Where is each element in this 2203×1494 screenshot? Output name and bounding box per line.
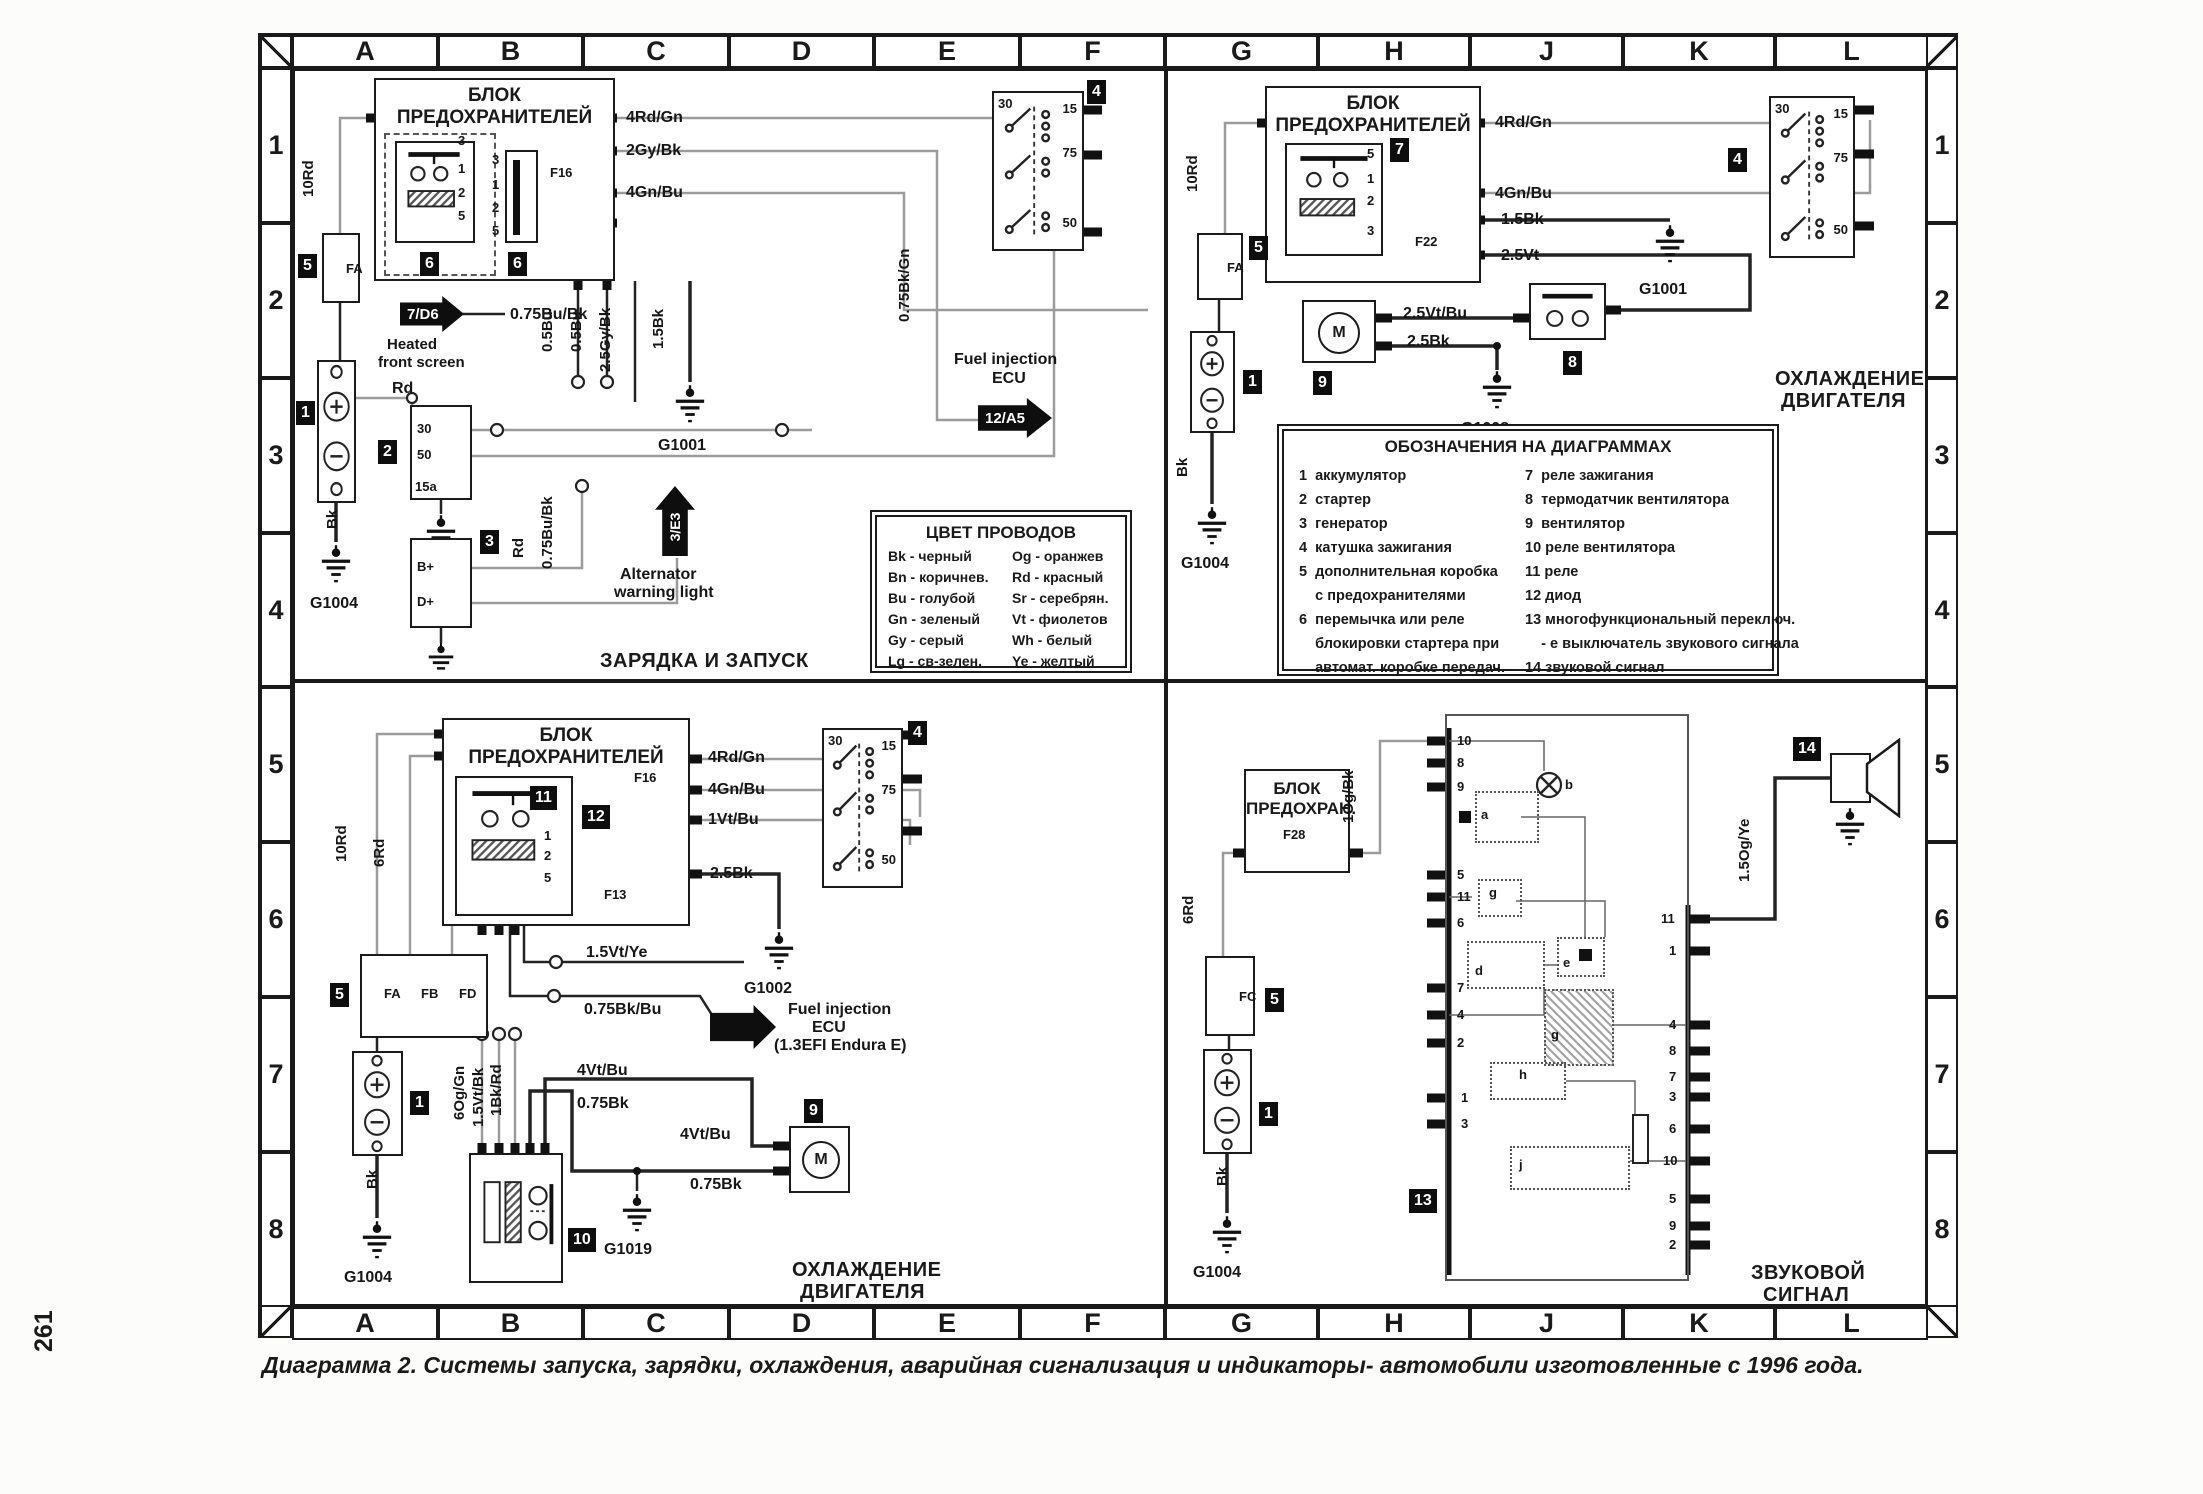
wire-label: 4Gn/Bu — [1495, 185, 1552, 203]
page-number: 261 — [30, 1310, 59, 1352]
grid-row-right-3: 3 — [1926, 378, 1958, 533]
mfs-switch-letter: b — [1565, 777, 1573, 792]
legend-row: 7 реле зажигания — [1525, 464, 1799, 488]
wire-label: 4Gn/Bu — [626, 184, 683, 202]
wire-label-vertical: 6Rd — [371, 839, 388, 867]
section-title-q4-line1: ЗВУКОВОЙ — [1751, 1262, 1865, 1285]
grid-col-top-g: G — [1165, 35, 1318, 68]
grid-row-right-8: 8 — [1926, 1152, 1958, 1307]
legend-row: 5 дополнительная коробка — [1299, 560, 1505, 584]
ignition-pin: 15 — [882, 738, 896, 753]
battery — [1203, 1049, 1252, 1154]
section-title-q3-line2: ДВИГАТЕЛЯ — [800, 1281, 925, 1304]
grid-row-left-4: 4 — [260, 533, 292, 687]
legend-row: - е выключатель звукового сигнала — [1525, 632, 1799, 656]
legend-row: 10 реле вентилятора — [1525, 536, 1799, 560]
mfs-switch-j-box — [1510, 1146, 1630, 1190]
legend-row: Bk - черный — [888, 546, 989, 567]
battery — [1190, 331, 1235, 433]
frame-corner-bl — [260, 1305, 292, 1338]
starter-pin: 15a — [415, 479, 437, 494]
legend-row: 4 катушка зажигания — [1299, 536, 1505, 560]
ground-label: G1001 — [658, 437, 706, 455]
grid-col-bot-e: E — [874, 1307, 1020, 1340]
mfs-right-pin: 6 — [1669, 1121, 1676, 1136]
fuse-label-f13: F13 — [604, 887, 626, 902]
motor-icon: M — [1318, 312, 1360, 354]
fan-motor: M — [1302, 300, 1376, 363]
wire-colors-right-column: Og - оранжев Rd - красный Sr - серебрян.… — [1012, 546, 1108, 672]
legend-row: Og - оранжев — [1012, 546, 1108, 567]
relay-pin: 3 — [458, 133, 465, 148]
alternator — [410, 538, 472, 628]
badge-horn: 14 — [1793, 737, 1821, 761]
connector-pin: 3 — [492, 152, 499, 167]
grid-row-right-1: 1 — [1926, 68, 1958, 223]
grid-col-bot-j: J — [1470, 1307, 1623, 1340]
ignition-pin: 15 — [1063, 101, 1077, 116]
wire-label-vertical: 1Bk/Rd — [488, 1064, 505, 1116]
ground-icon — [424, 643, 458, 679]
motor-icon: M — [802, 1141, 840, 1179]
wire-label-vertical: 10Rd — [333, 825, 350, 862]
wire-colors-legend-title: ЦВЕТ ПРОВОДОВ — [872, 523, 1130, 543]
grid-row-right-2: 2 — [1926, 223, 1958, 378]
ground-icon-horn — [1833, 807, 1867, 851]
mfs-left-pin: 10 — [1457, 733, 1471, 748]
mfs-switch-h-box — [1490, 1062, 1566, 1100]
mfs-left-pin: 7 — [1457, 980, 1464, 995]
ground-icon-g1004 — [360, 1220, 394, 1264]
legend-row: блокировки стартера при — [1299, 632, 1505, 656]
wire-label-vertical: Rd — [510, 538, 527, 558]
mfs-right-pin: 10 — [1663, 1153, 1677, 1168]
grid-row-right-6: 6 — [1926, 842, 1958, 997]
wire-label-vertical: 0.75Bk/Gn — [896, 249, 913, 322]
ignition-pin: 75 — [1063, 145, 1077, 160]
fuse-label-fc: FC — [1239, 989, 1256, 1004]
battery-icon — [354, 1053, 401, 1154]
mfs-switch-g-box — [1478, 879, 1522, 917]
grid-col-top-h: H — [1318, 35, 1470, 68]
ignition-switch: 30 15 75 50 — [992, 91, 1084, 251]
legend-row: 6 перемычка или реле — [1299, 608, 1505, 632]
ecu-caption-1: Fuel injection — [788, 1001, 891, 1019]
wire-label-vertical: Bk — [364, 1170, 381, 1189]
badge-ignition: 4 — [908, 721, 927, 745]
fuse-label-f28: F28 — [1283, 827, 1305, 842]
wire-label-vertical: Bk — [1214, 1167, 1231, 1186]
frame-corner-tr — [1926, 35, 1958, 68]
alt-warning-caption-2: warning light — [614, 584, 714, 602]
grid-row-left-1: 1 — [260, 68, 292, 223]
wire-label: 2.5Vt — [1501, 247, 1539, 265]
ecu-caption-2: ECU — [992, 370, 1026, 388]
grid-col-top-c: C — [583, 35, 729, 68]
thermo-switch-icon — [1531, 285, 1604, 338]
legend-row: автомат. коробке передач. — [1299, 656, 1505, 680]
quadrant-engine-cooling-top: БЛОК ПРЕДОХРАНИТЕЛЕЙ 5 1 2 3 7 F22 4Rd/G… — [1165, 68, 1928, 680]
mfs-left-pin: 5 — [1457, 867, 1464, 882]
wire-label: 0.75Bk — [690, 1176, 742, 1194]
wire-label-vertical: 10Rd — [300, 160, 317, 197]
grid-row-left-5: 5 — [260, 687, 292, 842]
fan-relay-box — [469, 1153, 563, 1283]
diagram-canvas: БЛОК ПРЕДОХРАНИТЕЛЕЙ 3 1 2 5 6 3 1 2 5 — [292, 68, 1928, 1307]
wire-label-vertical: 0.5Bu — [568, 311, 585, 352]
fuse-label-fd: FD — [459, 986, 476, 1001]
legend-row: Ye - желтый — [1012, 651, 1108, 672]
mfs-switch-letter: e — [1563, 955, 1570, 970]
legend-row: Wh - белый — [1012, 630, 1108, 651]
badge-aux-fusebox: 5 — [1265, 988, 1284, 1012]
grid-row-left-6: 6 — [260, 842, 292, 997]
wire-label-vertical: 0.5Bu — [539, 311, 556, 352]
legend-row: с предохранителями — [1299, 584, 1505, 608]
badge-ignition-relay: 7 — [1390, 138, 1409, 162]
section-title-q2-line1: ОХЛАЖДЕНИЕ — [1775, 368, 1924, 391]
grid-col-top-b: B — [438, 35, 583, 68]
fuse-label-fa: FA — [1227, 260, 1244, 275]
badge-thermo: 8 — [1563, 351, 1582, 375]
ground-icon-g1019 — [620, 1193, 654, 1237]
arrow-ref: 12/A5 — [985, 410, 1025, 427]
badge-ignition: 4 — [1728, 148, 1747, 172]
legend-row: 8 термодатчик вентилятора — [1525, 488, 1799, 512]
ground-label: G1004 — [344, 1269, 392, 1287]
alternator-pin: D+ — [417, 594, 434, 609]
legend-row: 13 многофункциональный переключ. — [1525, 608, 1799, 632]
relay-pin: 1 — [544, 828, 551, 843]
wire-label-vertical: Bk — [324, 510, 341, 529]
ignition-switch: 30 15 75 50 — [1769, 96, 1855, 258]
grid-row-left-2: 2 — [260, 223, 292, 378]
ground-label: G1004 — [1181, 555, 1229, 573]
alternator-pin: B+ — [417, 559, 434, 574]
quadrant-charging-starting: БЛОК ПРЕДОХРАНИТЕЛЕЙ 3 1 2 5 6 3 1 2 5 — [292, 68, 1165, 680]
fuse-box-title-q4-line2: ПРЕДОХРАН. — [1246, 799, 1348, 819]
legend-row: Sr - серебрян. — [1012, 588, 1108, 609]
wire-colors-left-column: Bk - черный Bn - коричнев. Bu - голубой … — [888, 546, 989, 672]
wire-label-vertical: 0.75Bu/Bk — [539, 496, 556, 569]
grid-col-bot-a: A — [292, 1307, 438, 1340]
wire-label: 2Gy/Bk — [626, 142, 681, 160]
fan-motor: M — [789, 1126, 850, 1193]
heated-caption-2: front screen — [378, 354, 465, 371]
grid-col-top-k: K — [1623, 35, 1775, 68]
badge-diode-12: 12 — [582, 805, 610, 829]
mfs-left-pin: 4 — [1457, 1007, 1464, 1022]
grid-col-bot-k: K — [1623, 1307, 1775, 1340]
ground-icon-g1004 — [1195, 506, 1229, 550]
grid-col-bot-c: C — [583, 1307, 729, 1340]
wire-label: 0.75Bk/Bu — [584, 1001, 661, 1019]
grid-row-right-4: 4 — [1926, 533, 1958, 687]
ignition-pin: 30 — [1775, 101, 1789, 116]
relay-pin: 3 — [1367, 223, 1374, 238]
ground-label: G1004 — [1193, 1264, 1241, 1282]
fuse-label-f16: F16 — [550, 165, 572, 180]
mfs-right-pin: 2 — [1669, 1237, 1676, 1252]
mfs-right-pin: 3 — [1669, 1089, 1676, 1104]
badge-alternator: 3 — [480, 530, 499, 554]
connector-pin: 2 — [492, 200, 499, 215]
mfs-left-pin: 2 — [1457, 1035, 1464, 1050]
relay-pin: 1 — [1367, 171, 1374, 186]
wire-label: 2.5Bk — [710, 865, 753, 883]
grid-col-top-f: F — [1020, 35, 1165, 68]
ground-icon-g1001 — [1653, 224, 1687, 268]
fuse-label-f16: F16 — [634, 770, 656, 785]
ground-icon-g1008 — [1480, 370, 1514, 414]
ground-icon-g1004 — [1210, 1215, 1244, 1259]
ground-label: G1001 — [1639, 281, 1687, 299]
grid-col-bot-b: B — [438, 1307, 583, 1340]
mfs-switch-letter: j — [1519, 1157, 1523, 1172]
wire-label: 4Rd/Gn — [1495, 114, 1552, 132]
ground-label: G1004 — [310, 595, 358, 613]
connector-bar-icon — [513, 160, 520, 235]
ground-label: G1002 — [744, 980, 792, 998]
grid-col-bot-h: H — [1318, 1307, 1470, 1340]
wire-label: 4Gn/Bu — [708, 781, 765, 799]
wire-label-vertical: 1Og/Bk — [1340, 770, 1357, 823]
relay-pin: 5 — [544, 870, 551, 885]
legend-row: Bu - голубой — [888, 588, 989, 609]
wire-label-vertical: 2.5Gy/Bk — [597, 308, 614, 372]
frame-corner-tl — [260, 35, 292, 68]
grid-row-right-5: 5 — [1926, 687, 1958, 842]
mfs-switch-letter: d — [1475, 963, 1483, 978]
ground-icon-g1002 — [762, 931, 796, 975]
ground-icon-g1004 — [319, 544, 353, 588]
grid-col-top-j: J — [1470, 35, 1623, 68]
legend-row: Vt - фиолетов — [1012, 609, 1108, 630]
wire-label: 1.5Vt/Ye — [586, 944, 647, 962]
relay-pin: 5 — [458, 208, 465, 223]
connector-block-q1 — [505, 150, 538, 243]
starter-pin: 50 — [417, 447, 431, 462]
mfs-right-pin: 8 — [1669, 1043, 1676, 1058]
fuse-label-fb: FB — [421, 986, 438, 1001]
arrow-ref: 3/Е3 — [667, 512, 683, 541]
battery — [317, 360, 356, 503]
mfs-switch-letter: g — [1489, 885, 1497, 900]
badge-starter: 2 — [378, 440, 397, 464]
wire-label: 4Vt/Bu — [577, 1062, 628, 1080]
figure-caption: Диаграмма 2. Системы запуска, зарядки, о… — [262, 1352, 1864, 1379]
mfs-left-pin: 9 — [1457, 779, 1464, 794]
grid-row-left-8: 8 — [260, 1152, 292, 1307]
horn-trumpet-outline-icon — [1865, 738, 1901, 818]
fuse-box-title-q1: БЛОК ПРЕДОХРАНИТЕЛЕЙ — [376, 85, 613, 129]
ground-icon-g1001 — [673, 384, 707, 428]
legend-row: 12 диод — [1525, 584, 1799, 608]
grid-col-top-a: A — [292, 35, 438, 68]
grid-col-bot-d: D — [729, 1307, 874, 1340]
ecu-caption-3: (1.3EFI Endura E) — [774, 1037, 906, 1055]
ignition-switch: 30 15 75 50 — [822, 728, 903, 888]
ecu-caption-1: Fuel injection — [954, 351, 1057, 369]
fuse-label-fa: FA — [384, 986, 401, 1001]
badge-battery: 1 — [1259, 1102, 1278, 1126]
wire-label: 4Rd/Gn — [626, 109, 683, 127]
legend-row: Lg - св-зелен. — [888, 651, 989, 672]
mfs-right-pin: 7 — [1669, 1069, 1676, 1084]
legend-row: 14 звуковой сигнал — [1525, 656, 1799, 680]
wire-label-vertical: 6Og/Gn — [451, 1066, 468, 1120]
ignition-pin: 50 — [882, 852, 896, 867]
wire-label: 0.75Bk — [577, 1095, 629, 1113]
battery-icon — [319, 362, 354, 501]
badge-fan: 9 — [1313, 371, 1332, 395]
heated-caption-1: Heated — [387, 336, 437, 353]
wire-label: Rd — [392, 380, 413, 398]
legend-row: 2 стартер — [1299, 488, 1505, 512]
designations-right-column: 7 реле зажигания 8 термодатчик вентилято… — [1525, 464, 1799, 680]
fuse-box-title-q2: БЛОК ПРЕДОХРАНИТЕЛЕЙ — [1267, 93, 1479, 137]
section-title-q3-line1: ОХЛАЖДЕНИЕ — [792, 1259, 941, 1282]
fuse-box-title-q4-line1: БЛОК — [1246, 779, 1348, 799]
legend-row: 3 генератор — [1299, 512, 1505, 536]
wire-label: 4Vt/Bu — [680, 1126, 731, 1144]
mfs-left-pin: 11 — [1457, 889, 1471, 904]
fuse-box-title-q3: БЛОК ПРЕДОХРАНИТЕЛЕЙ — [444, 725, 688, 769]
frame-corner-br — [1926, 1305, 1958, 1338]
fuse-label-f22: F22 — [1415, 234, 1437, 249]
grid-row-left-3: 3 — [260, 378, 292, 533]
mfs-left-pin: 8 — [1457, 755, 1464, 770]
scanned-wiring-diagram-page: { "page": { "number": "261", "caption": … — [0, 0, 2203, 1494]
mfs-right-pin: 9 — [1669, 1218, 1676, 1233]
ignition-pin: 50 — [1063, 215, 1077, 230]
grid-col-bot-l: L — [1775, 1307, 1928, 1340]
fuse-box-q4: БЛОК ПРЕДОХРАН. — [1244, 769, 1350, 873]
grid-col-top-d: D — [729, 35, 874, 68]
ignition-pin: 30 — [828, 733, 842, 748]
relay-pin: 2 — [458, 185, 465, 200]
legend-row: Bn - коричнев. — [888, 567, 989, 588]
ignition-pin: 50 — [1834, 222, 1848, 237]
grid-col-bot-f: F — [1020, 1307, 1165, 1340]
wire-label: 1.5Bk — [1501, 211, 1544, 229]
alt-warning-caption-1: Alternator — [620, 566, 696, 584]
diagram-frame: A B C D E F G H J K L A B C D E F G H J … — [258, 33, 1958, 1338]
badge-battery: 1 — [410, 1091, 429, 1115]
badge-battery: 1 — [296, 401, 315, 425]
grid-col-top-e: E — [874, 35, 1020, 68]
badge-aux-fusebox: 5 — [298, 254, 317, 278]
wire-label: 2.5Vt/Bu — [1403, 305, 1467, 323]
badge-relay-11: 11 — [530, 786, 557, 810]
fuse-label-fa: FA — [346, 261, 363, 276]
mfs-right-pin: 11 — [1661, 911, 1675, 926]
badge-ignition: 4 — [1087, 80, 1106, 104]
mfs-right-pin: 4 — [1669, 1017, 1676, 1032]
section-title-q1: ЗАРЯДКА И ЗАПУСК — [600, 650, 809, 673]
relay-pin: 2 — [544, 848, 551, 863]
fan-relay-icon — [471, 1155, 561, 1281]
grid-col-bot-g: G — [1165, 1307, 1318, 1340]
ground-label: G1019 — [604, 1241, 652, 1259]
wire-label-vertical: Bk — [1174, 458, 1191, 477]
mfs-switch-letter: g — [1551, 1027, 1559, 1042]
wire-label-vertical: 10Rd — [1184, 155, 1201, 192]
legend-row: 1 аккумулятор — [1299, 464, 1505, 488]
wire-label-vertical: 1.5Vt/Bk — [470, 1068, 487, 1127]
legend-row: Gy - серый — [888, 630, 989, 651]
designations-legend: ОБОЗНАЧЕНИЯ НА ДИАГРАММАХ 1 аккумулятор … — [1277, 424, 1779, 676]
ignition-pin: 15 — [1834, 106, 1848, 121]
relay-pin: 1 — [458, 161, 465, 176]
legend-row: 9 вентилятор — [1525, 512, 1799, 536]
badge-aux-fusebox: 5 — [330, 983, 349, 1007]
connector-pin: 5 — [492, 223, 499, 238]
mfs-right-pin: 1 — [1669, 943, 1676, 958]
badge-battery: 1 — [1243, 370, 1262, 394]
battery-icon — [1205, 1051, 1250, 1152]
arrow-ref: 7/D6 — [407, 306, 439, 323]
wire-label-vertical: 6Rd — [1180, 896, 1197, 924]
section-title-q2-line2: ДВИГАТЕЛЯ — [1781, 390, 1906, 413]
mfs-left-pin: 6 — [1457, 915, 1464, 930]
starter-pin: 30 — [417, 421, 431, 436]
ignition-pin: 75 — [1834, 150, 1848, 165]
ecu-caption-2: ECU — [812, 1019, 846, 1037]
mfs-switch-letter: h — [1519, 1067, 1527, 1082]
wire-label-vertical: 1.5Bk — [650, 309, 667, 349]
badge-starter-inhibit: 6 — [420, 252, 439, 276]
badge-fan: 9 — [804, 1099, 823, 1123]
badge-fan-relay: 10 — [568, 1228, 596, 1252]
grid-row-left-7: 7 — [260, 997, 292, 1152]
connector-pin: 1 — [492, 177, 499, 192]
wire-label: 1Vt/Bu — [708, 811, 759, 829]
badge-aux-fusebox: 5 — [1249, 236, 1268, 260]
ignition-pin: 75 — [882, 782, 896, 797]
section-title-q4-line2: СИГНАЛ — [1763, 1284, 1849, 1307]
legend-row: Rd - красный — [1012, 567, 1108, 588]
quadrant-horn: БЛОК ПРЕДОХРАН. F28 6Rd 1Og/Bk FC 5 1 Bk… — [1165, 683, 1928, 1307]
legend-row: Gn - зеленый — [888, 609, 989, 630]
wire-label-vertical: 1.5Og/Ye — [1736, 819, 1753, 882]
wire-label: 4Rd/Gn — [708, 749, 765, 767]
badge-connector: 6 — [508, 252, 527, 276]
relay-pin: 2 — [1367, 193, 1374, 208]
mfs-switch-letter: a — [1481, 807, 1488, 822]
mfs-left-pin: 1 — [1461, 1090, 1468, 1105]
quadrant-engine-cooling-bottom: БЛОК ПРЕДОХРАНИТЕЛЕЙ 3 1 2 5 11 12 F16 F… — [292, 683, 1165, 1307]
ignition-pin: 30 — [998, 96, 1012, 111]
legend-row: 11 реле — [1525, 560, 1799, 584]
designations-legend-title: ОБОЗНАЧЕНИЯ НА ДИАГРАММАХ — [1279, 437, 1777, 457]
battery-icon — [1192, 333, 1233, 431]
mfs-right-pin: 5 — [1669, 1191, 1676, 1206]
relay-pin: 5 — [1367, 146, 1374, 161]
battery — [352, 1051, 403, 1156]
mfs-left-pin: 3 — [1461, 1116, 1468, 1131]
grid-col-top-l: L — [1775, 35, 1928, 68]
wire-label: 2.5Bk — [1407, 333, 1450, 351]
badge-multifunction-switch: 13 — [1409, 1189, 1437, 1213]
thermo-switch — [1529, 283, 1606, 340]
grid-row-right-7: 7 — [1926, 997, 1958, 1152]
wire-colors-legend: ЦВЕТ ПРОВОДОВ Bk - черный Bn - коричнев.… — [870, 510, 1132, 673]
designations-left-column: 1 аккумулятор 2 стартер 3 генератор 4 ка… — [1299, 464, 1505, 680]
